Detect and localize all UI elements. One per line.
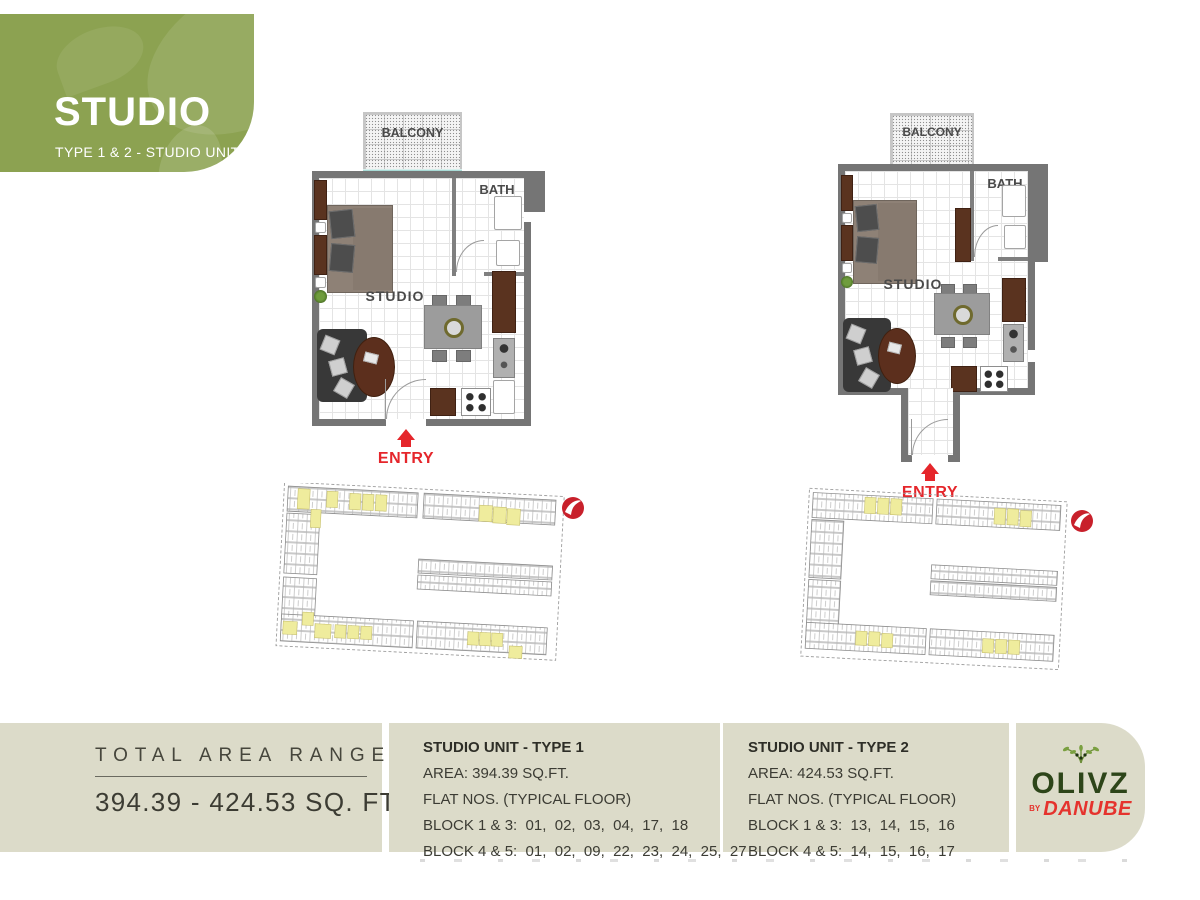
entry-arrow-icon	[921, 463, 939, 474]
balcony-area	[363, 112, 462, 172]
exterior-wall	[524, 171, 545, 212]
entry-arrow-icon	[925, 474, 935, 481]
studio-label: STUDIO	[360, 288, 430, 304]
plant-icon	[841, 276, 853, 288]
sofa-cushion	[846, 324, 867, 345]
balcony-label: BALCONY	[363, 126, 462, 140]
coffee-table	[878, 328, 916, 384]
wardrobe	[841, 175, 853, 211]
keyplan-type-2	[795, 483, 1125, 683]
brochure-page: STUDIO TYPE 1 & 2 - STUDIO UNIT BALCONY …	[0, 0, 1200, 900]
dining-table	[934, 293, 990, 335]
dining-chair	[941, 337, 955, 348]
panel-divider	[720, 723, 723, 852]
wash-basin	[1004, 225, 1026, 249]
kitchen-sink	[493, 338, 515, 378]
side-table	[315, 222, 326, 233]
dining-table	[424, 305, 482, 349]
unit-flat-nos: FLAT NOS. (TYPICAL FLOOR)	[748, 787, 956, 813]
table-centerpiece	[444, 318, 464, 338]
leaf-decoration-icon	[48, 15, 151, 97]
pillow	[855, 236, 879, 264]
total-area-panel: TOTAL AREA RANGE 394.39 - 424.53 SQ. FT.	[0, 723, 382, 852]
total-area-label: TOTAL AREA RANGE	[95, 745, 367, 767]
entry-door-leaf	[911, 419, 912, 456]
bed-blanket	[878, 203, 916, 281]
wardrobe	[841, 225, 853, 261]
sofa-cushion	[858, 367, 880, 389]
kitchen-cabinet	[430, 388, 456, 416]
entry-opening	[386, 419, 426, 426]
coffee-table	[353, 337, 395, 397]
page-subtitle: TYPE 1 & 2 - STUDIO UNIT	[55, 144, 240, 160]
olive-branch-icon	[1052, 745, 1110, 765]
sofa-cushion	[320, 335, 341, 356]
olivz-wordmark: OLIVZ	[1016, 770, 1145, 798]
kitchen-cabinet	[1002, 278, 1026, 322]
dining-chair	[432, 350, 447, 362]
unit-info-panel: STUDIO UNIT - TYPE 1 AREA: 394.39 SQ.FT.…	[389, 723, 1009, 852]
unit-info-type-1: STUDIO UNIT - TYPE 1 AREA: 394.39 SQ.FT.…	[423, 735, 747, 865]
entry-door-leaf	[385, 379, 386, 420]
unit-title: STUDIO UNIT - TYPE 1	[423, 735, 747, 761]
bed	[327, 205, 393, 293]
wardrobe	[955, 208, 971, 262]
kitchen-counter	[493, 380, 515, 414]
bed	[853, 200, 917, 284]
shower-tray	[494, 196, 522, 230]
unit-block-1-3: BLOCK 1 & 3: 01, 02, 03, 04, 17, 18	[423, 813, 747, 839]
exterior-wall	[1035, 164, 1048, 262]
entry-opening	[912, 455, 948, 462]
unit-flat-nos: FLAT NOS. (TYPICAL FLOOR)	[423, 787, 747, 813]
bath-label: BATH	[470, 182, 524, 197]
wardrobe	[314, 235, 327, 275]
compass-icon	[562, 497, 584, 519]
pillow	[855, 204, 880, 232]
dining-chair	[963, 337, 977, 348]
wall-notch	[1028, 350, 1035, 362]
bath-wall	[452, 178, 456, 276]
plant-icon	[314, 290, 327, 303]
stove	[461, 388, 491, 416]
keyplan-type-1	[268, 483, 598, 678]
shower-tray	[1002, 185, 1026, 217]
entry-arrow-icon	[401, 440, 411, 447]
table-centerpiece	[953, 305, 973, 325]
corridor-wall	[901, 395, 908, 462]
bed-blanket	[353, 208, 392, 290]
wardrobe	[314, 180, 327, 220]
side-table	[842, 213, 852, 223]
wash-basin	[496, 240, 520, 266]
unit-area: AREA: 424.53 SQ.FT.	[748, 761, 956, 787]
total-area-divider	[95, 776, 367, 777]
balcony-area	[890, 113, 974, 168]
corridor-wall	[953, 395, 960, 462]
unit-title: STUDIO UNIT - TYPE 2	[748, 735, 956, 761]
side-table	[315, 277, 326, 288]
brand-logo-panel: OLIVZ BYDANUBE	[1016, 723, 1145, 852]
bath-wall	[998, 257, 1028, 261]
danube-wordmark: DANUBE	[1043, 798, 1132, 820]
compass-icon	[1071, 510, 1093, 532]
pillow	[329, 209, 356, 239]
dining-chair	[456, 350, 471, 362]
side-table	[842, 263, 852, 273]
unit-area: AREA: 394.39 SQ.FT.	[423, 761, 747, 787]
studio-label: STUDIO	[880, 276, 946, 292]
header-banner: STUDIO TYPE 1 & 2 - STUDIO UNIT	[0, 14, 254, 172]
total-area-value: 394.39 - 424.53 SQ. FT.	[95, 787, 367, 818]
unit-block-1-3: BLOCK 1 & 3: 13, 14, 15, 16	[748, 813, 956, 839]
sofa-cushion	[853, 346, 873, 366]
page-title: STUDIO	[54, 90, 211, 135]
kitchen-cabinet	[492, 271, 516, 333]
sofa-cushion	[328, 357, 348, 377]
stove	[980, 366, 1008, 392]
logo-by-label: BY	[1029, 804, 1040, 813]
pillow	[329, 243, 355, 273]
sofa-cushion	[333, 377, 355, 399]
table-book	[363, 351, 379, 364]
wall-notch	[524, 212, 538, 222]
unit-info-type-2: STUDIO UNIT - TYPE 2 AREA: 424.53 SQ.FT.…	[748, 735, 956, 865]
entry-arrow-icon	[397, 429, 415, 440]
fine-print	[420, 859, 1138, 862]
table-book	[887, 342, 902, 355]
balcony-label: BALCONY	[890, 125, 974, 139]
entry-label: ENTRY	[375, 450, 437, 468]
kitchen-cabinet	[951, 366, 977, 392]
kitchen-sink	[1003, 324, 1024, 362]
